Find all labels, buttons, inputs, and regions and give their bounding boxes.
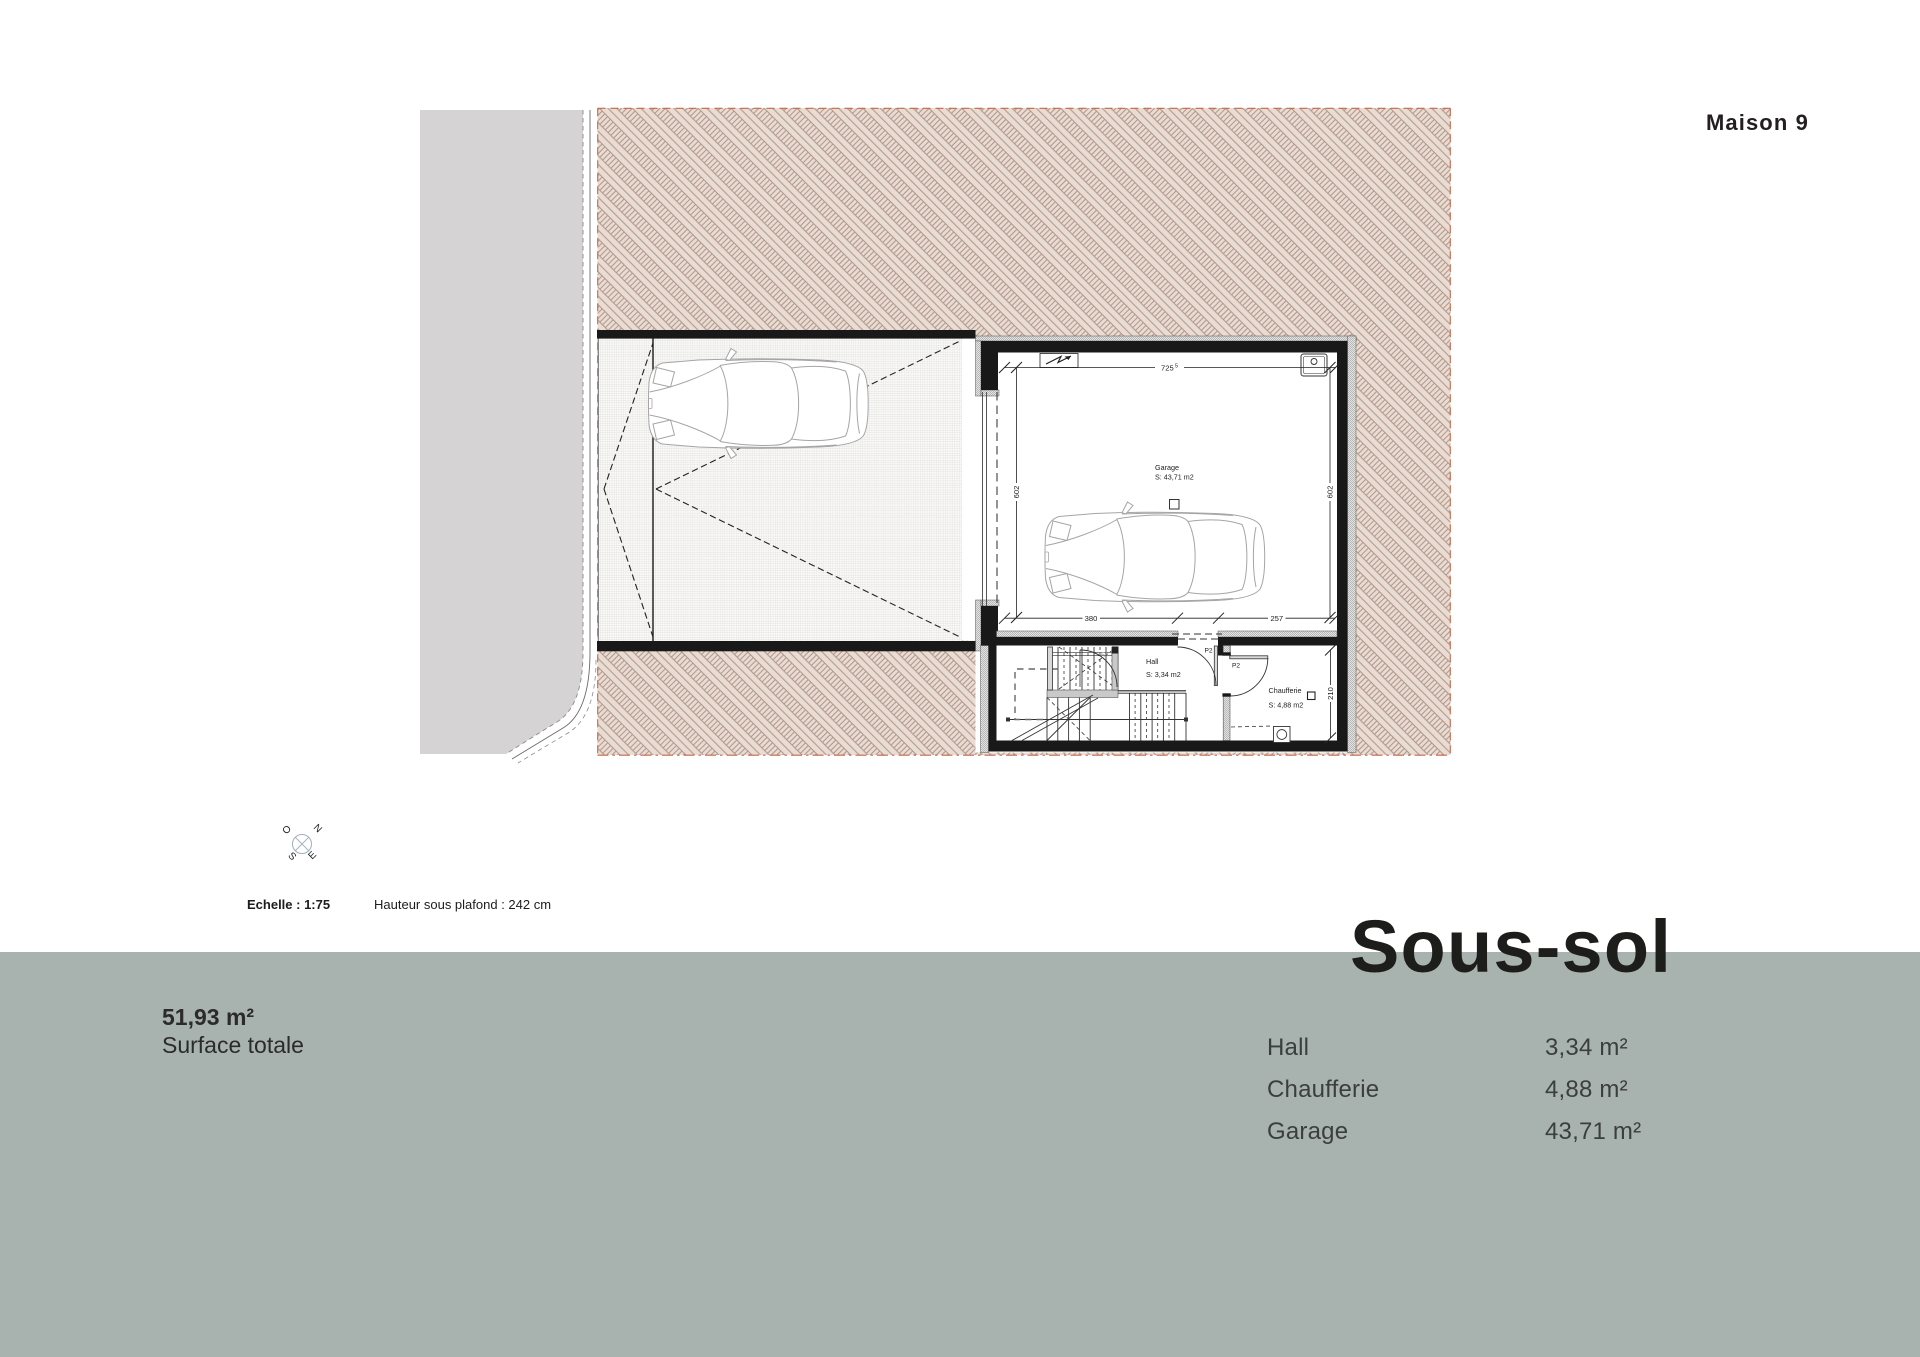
svg-text:5: 5: [1175, 363, 1178, 369]
svg-text:602: 602: [1325, 486, 1334, 499]
svg-text:602: 602: [1012, 486, 1021, 499]
svg-text:S: 43,71 m2: S: 43,71 m2: [1155, 473, 1194, 482]
svg-text:S: S: [286, 850, 299, 863]
svg-text:O: O: [281, 823, 294, 836]
svg-text:E: E: [306, 849, 319, 862]
svg-text:P2: P2: [1232, 663, 1240, 670]
svg-text:N: N: [311, 822, 324, 835]
svg-text:Chaufferie: Chaufferie: [1269, 686, 1302, 695]
svg-text:380: 380: [1085, 614, 1098, 623]
svg-text:210: 210: [1326, 687, 1335, 700]
svg-text:725: 725: [1161, 363, 1174, 372]
svg-text:F3: F3: [1101, 653, 1109, 659]
svg-text:P2: P2: [1205, 648, 1213, 655]
svg-text:257: 257: [1270, 614, 1283, 623]
svg-text:S: 3,34 m2: S: 3,34 m2: [1146, 670, 1181, 679]
svg-text:S: 4,88 m2: S: 4,88 m2: [1269, 701, 1304, 710]
svg-text:Garage: Garage: [1155, 463, 1179, 472]
svg-text:Hall: Hall: [1146, 657, 1159, 666]
